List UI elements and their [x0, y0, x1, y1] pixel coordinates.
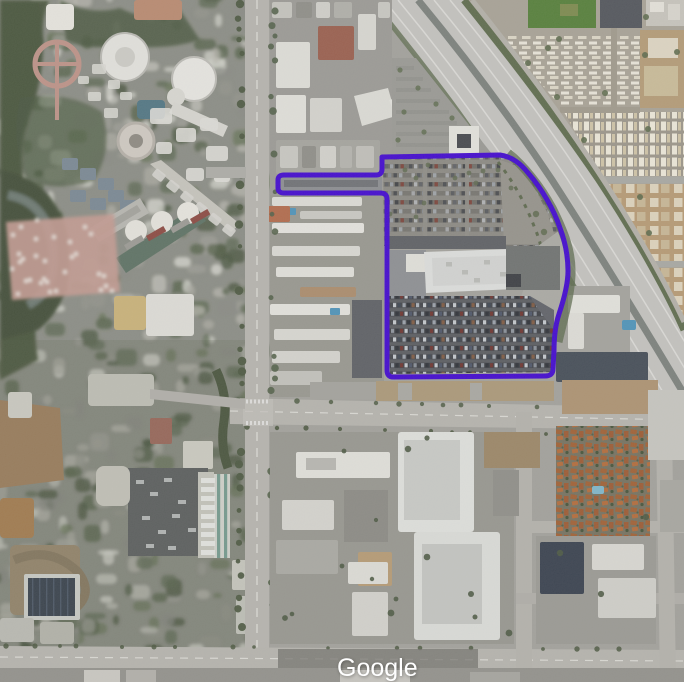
svg-text:Google: Google [337, 654, 418, 682]
